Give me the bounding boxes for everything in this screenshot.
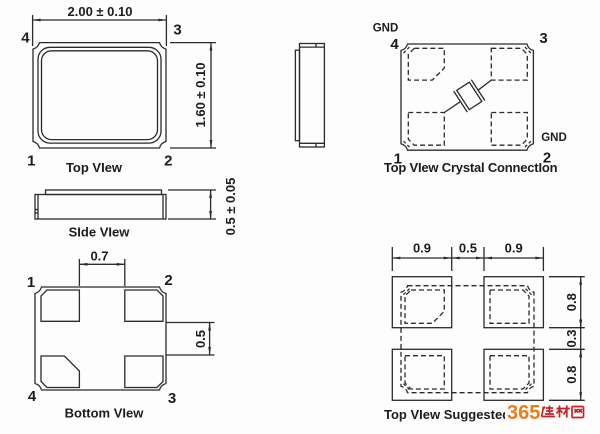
svg-text:4: 4 xyxy=(21,30,30,47)
svg-text:0.5 ± 0.05: 0.5 ± 0.05 xyxy=(223,178,238,236)
svg-text:0.5: 0.5 xyxy=(459,241,477,256)
svg-text:3: 3 xyxy=(539,30,547,47)
svg-text:2: 2 xyxy=(164,153,172,170)
svg-text:Bottom VIew: Bottom VIew xyxy=(65,406,145,421)
svg-text:Top VIew: Top VIew xyxy=(66,160,123,175)
svg-text:Top VIew Suggested: Top VIew Suggested xyxy=(384,407,510,422)
svg-text:2: 2 xyxy=(164,272,172,289)
svg-text:4: 4 xyxy=(28,388,37,405)
svg-text:4: 4 xyxy=(390,36,399,53)
svg-text:0.3: 0.3 xyxy=(564,329,579,347)
svg-text:0.9: 0.9 xyxy=(413,241,431,256)
svg-text:1.60 ± 0.10: 1.60 ± 0.10 xyxy=(193,63,208,128)
svg-text:0.7: 0.7 xyxy=(90,248,108,263)
svg-text:Top VIew Crystal ConnectIon: Top VIew Crystal ConnectIon xyxy=(384,160,558,175)
svg-text:0.8: 0.8 xyxy=(564,293,579,311)
svg-text:GND: GND xyxy=(373,23,399,35)
svg-text:3: 3 xyxy=(168,390,176,407)
svg-text:SIde VIew: SIde VIew xyxy=(69,225,131,240)
svg-text:0.9: 0.9 xyxy=(505,241,523,256)
svg-text:365: 365 xyxy=(507,402,540,424)
svg-text:1: 1 xyxy=(27,274,35,291)
svg-text:1: 1 xyxy=(27,153,35,170)
svg-text:0.5: 0.5 xyxy=(193,330,208,348)
svg-text:3: 3 xyxy=(173,22,181,39)
svg-text:2.00 ± 0.10: 2.00 ± 0.10 xyxy=(68,4,133,19)
svg-text:GND: GND xyxy=(541,132,567,144)
svg-text:0.8: 0.8 xyxy=(564,366,579,384)
